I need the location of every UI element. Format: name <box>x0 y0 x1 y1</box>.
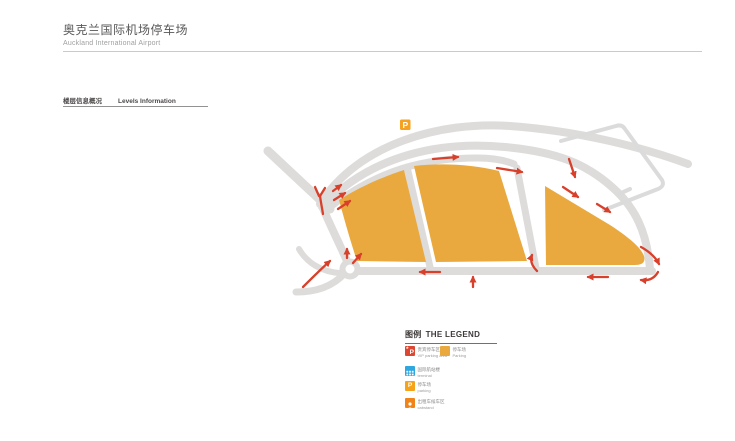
section-header: 楼层信息概况Levels Information <box>63 95 176 105</box>
airport-parking-map: P <box>260 108 700 308</box>
section-label-en: Levels Information <box>118 98 176 105</box>
header-divider <box>63 51 702 52</box>
section-divider <box>63 106 208 107</box>
parking-area-swatch <box>440 346 450 356</box>
page-subtitle: Auckland International Airport <box>63 40 160 47</box>
vip-parking-icon: ★ P <box>405 346 415 356</box>
legend-label-en: Parking <box>453 353 467 358</box>
legend-item-parking-area: 停车场 Parking <box>440 346 466 358</box>
road-southwest-exit <box>296 273 345 292</box>
roundabout <box>343 262 358 277</box>
legend-label-en: cabstand <box>418 405 445 410</box>
legend-title-zh: 图例 <box>405 330 422 339</box>
page-title: 奥克兰国际机场停车场 <box>63 21 188 38</box>
star-icon: ★ <box>406 346 410 350</box>
terminal-icon <box>405 366 415 376</box>
p-marker: P <box>400 120 411 131</box>
legend-divider <box>405 343 497 344</box>
parking-icon: P <box>405 381 415 391</box>
legend-title-en: THE LEGEND <box>426 330 481 339</box>
legend-item-parking: P 停车场 parking <box>405 381 431 393</box>
parking-area-3 <box>545 186 644 265</box>
legend-item-cabstand: 出租车候车区 cabstand <box>405 398 445 410</box>
parking-area-2 <box>414 164 527 262</box>
legend: 图例THE LEGEND ★ P 贵宾停车区 VIP parking area … <box>405 329 525 419</box>
legend-item-terminal: 国际航站楼 terminal <box>405 366 440 378</box>
legend-title: 图例THE LEGEND <box>405 329 525 340</box>
arrow <box>563 187 578 197</box>
section-label-zh: 楼层信息概况 <box>63 98 102 105</box>
legend-label-en: terminal <box>418 373 441 378</box>
cabstand-icon <box>405 398 415 408</box>
legend-label-en: parking <box>418 388 432 393</box>
p-marker-label: P <box>402 120 408 130</box>
